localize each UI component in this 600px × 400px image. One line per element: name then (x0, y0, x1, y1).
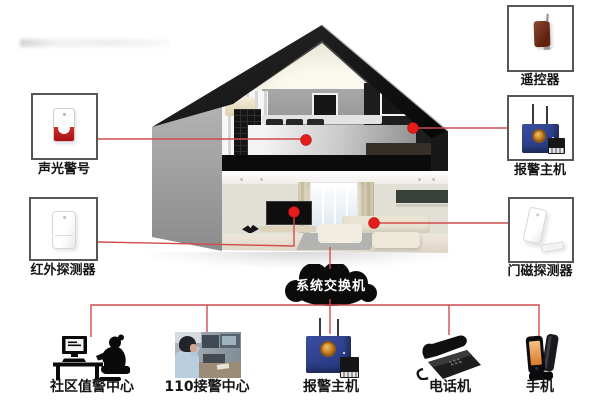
bedroom-right-dark-strip (431, 131, 448, 171)
sofa (318, 224, 362, 243)
mobile-phone-icon (521, 332, 561, 382)
watermark-smudge (20, 39, 170, 47)
device-box-remote (507, 5, 574, 72)
remote-control-icon (534, 21, 551, 48)
network-cloud: 系统交换机 (278, 264, 384, 306)
label-mobile-phone: 手机 (480, 379, 600, 395)
siren-icon (53, 108, 75, 142)
ottoman (372, 232, 420, 248)
label-110-center: 110接警中心 (147, 379, 267, 395)
label-remote-control: 遥控器 (480, 74, 600, 89)
alarm-host-icon-bottom (304, 318, 360, 380)
label-pir-detector: 红外探测器 (3, 264, 123, 279)
cloud-label: 系统交换机 (278, 275, 384, 294)
device-box-door-sensor (508, 197, 574, 263)
community-duty-center-icon (52, 333, 130, 383)
device-box-siren (31, 93, 98, 160)
door-sensor-icon (523, 207, 548, 245)
living-room-photo (222, 171, 448, 253)
bedroom-photo (222, 41, 431, 171)
label-door-sensor: 门磁探测器 (480, 265, 600, 280)
label-alarm-host: 报警主机 (480, 164, 600, 179)
alarm-host-icon (515, 104, 569, 156)
desk-phone-icon (413, 332, 485, 380)
pir-detector-icon (52, 211, 76, 249)
wall-art (396, 190, 448, 203)
label-community-center: 社区值警中心 (32, 379, 152, 395)
device-box-alarm-host (507, 95, 574, 161)
house-left-wall (152, 106, 222, 251)
call-center-photo (175, 332, 241, 378)
security-system-diagram: 系统交换机 (0, 0, 600, 400)
label-alarm-host-bottom: 报警主机 (271, 379, 391, 395)
label-siren: 声光警号 (4, 163, 124, 178)
tv (266, 201, 312, 225)
picture-frame (380, 87, 406, 116)
device-box-pir (29, 197, 98, 261)
